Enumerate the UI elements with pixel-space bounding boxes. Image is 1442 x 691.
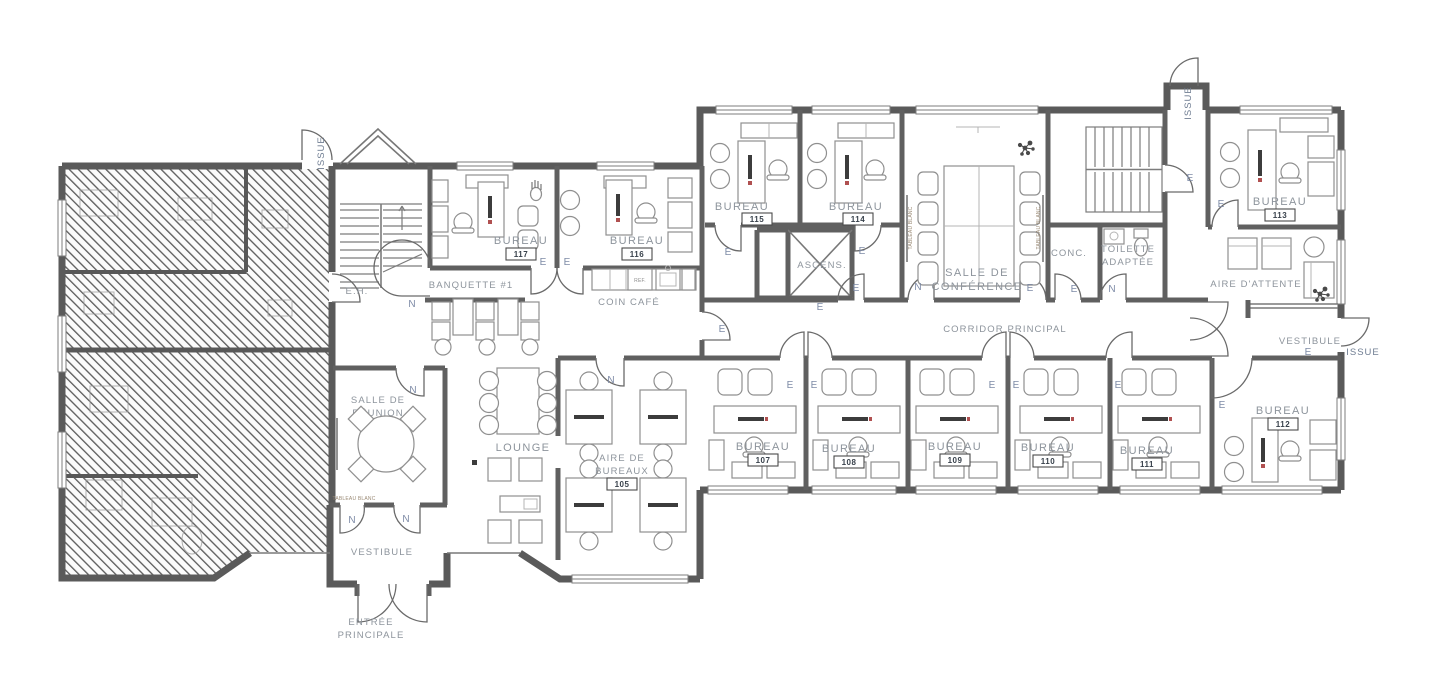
door-label-e: E [564, 257, 571, 268]
room-number: 110 [1041, 457, 1055, 466]
room-label: BUREAU [928, 441, 982, 453]
door-label-e: E [1187, 173, 1194, 184]
door-label-e: E [811, 380, 818, 391]
door-label-e: E [1115, 380, 1122, 391]
stairwell-label: E.H. [346, 286, 369, 297]
entrance-label-line2: PRINCIPALE [338, 630, 405, 641]
toilette-label-line1: TOILETTE [1101, 244, 1155, 255]
room-number: 113 [1273, 211, 1287, 220]
whiteboard-label: TABLEAU BLANC [1036, 206, 1042, 249]
room-number: 115 [750, 215, 764, 224]
room-number: 114 [851, 215, 865, 224]
exit-label-northwest: ISSUE [316, 136, 327, 170]
room-label: BUREAU [1120, 445, 1174, 457]
door-label-e: E [719, 324, 726, 335]
vestibule-south: VESTIBULE [351, 547, 413, 558]
room-label: BUREAU [822, 443, 876, 455]
conc-label: CONC. [1051, 248, 1087, 259]
room-label: BUREAU [1256, 405, 1310, 417]
door-label-n: N [408, 299, 415, 310]
door-label-e: E [725, 247, 732, 258]
door-label-e: E [1219, 400, 1226, 411]
door-label-e: E [1013, 380, 1020, 391]
room-number: 111 [1140, 460, 1154, 469]
door-label-n: N [1108, 284, 1115, 295]
vestibule-label: VESTIBULE [351, 547, 413, 558]
door-label-e: E [1027, 283, 1034, 294]
room-label-line2: CONFÉRENCE [931, 280, 1022, 293]
door-label-e: E [540, 257, 547, 268]
banquette-label: BANQUETTE #1 [429, 280, 513, 291]
door-label-e: E [1218, 199, 1225, 210]
room-label: BUREAU [1021, 442, 1075, 454]
room-label-line1: SALLE DE [351, 395, 405, 406]
elevator: ASCENS. [797, 260, 846, 271]
room-label-line1: SALLE DE [945, 267, 1009, 279]
whiteboard-label: TABLEAU BLANC [908, 206, 914, 249]
floor-plan-page: BUREAU 117 BUREAU 116 BANQUETTE #1 REF. … [0, 0, 1442, 691]
room-label: BUREAU [610, 235, 664, 247]
vestibule-label: VESTIBULE [1279, 336, 1341, 347]
door-label-n: N [409, 385, 416, 396]
room-number: 108 [842, 458, 857, 467]
coin-cafe-label: COIN CAFÉ [598, 297, 660, 308]
room-number: 107 [756, 456, 771, 465]
fridge-label: REF. [634, 278, 646, 284]
corridor-label: CORRIDOR PRINCIPAL [943, 324, 1067, 335]
whiteboard-label: TABLEAU BLANC [332, 496, 375, 502]
room-label: BUREAU [736, 441, 790, 453]
waiting-area-label: AIRE D'ATTENTE [1210, 279, 1301, 290]
door-label-e: E [853, 283, 860, 294]
door-label-e: E [859, 246, 866, 257]
door-label-n: N [607, 375, 614, 386]
door-type-label: E [1305, 347, 1312, 358]
door-label-e: E [817, 302, 824, 313]
room-label: BUREAU [829, 201, 883, 213]
room-label-line1: AIRE DE [599, 453, 645, 464]
room-number: 105 [615, 480, 630, 489]
room-number: 112 [1276, 420, 1290, 429]
room-label: BUREAU [1253, 196, 1307, 208]
exit-label-northeast: ISSUE [1183, 86, 1194, 120]
hatched-existing-area [62, 169, 332, 576]
room-label: BUREAU [715, 201, 769, 213]
room-number: 116 [630, 250, 644, 259]
room-label-line2: BUREAUX [595, 466, 649, 477]
room-number: 109 [948, 456, 963, 465]
door-label-n: N [914, 282, 921, 293]
door-label-n: N [402, 514, 409, 525]
door-label-e: E [787, 380, 794, 391]
conciergerie: CONC. [1051, 248, 1087, 259]
elevator-label: ASCENS. [797, 260, 846, 271]
door-label-e: E [989, 380, 996, 391]
room-number: 117 [514, 250, 528, 259]
exit-label: ISSUE [1346, 347, 1380, 358]
door-label-e: E [1071, 284, 1078, 295]
room-label: BUREAU [494, 235, 548, 247]
toilette-label-line2: ADAPTÉE [1102, 257, 1154, 268]
entrance-label-line1: ENTRÉE [348, 617, 393, 628]
floor-plan: BUREAU 117 BUREAU 116 BANQUETTE #1 REF. … [0, 0, 1442, 691]
door-label-n: N [348, 515, 355, 526]
lounge-label: LOUNGE [496, 442, 551, 454]
